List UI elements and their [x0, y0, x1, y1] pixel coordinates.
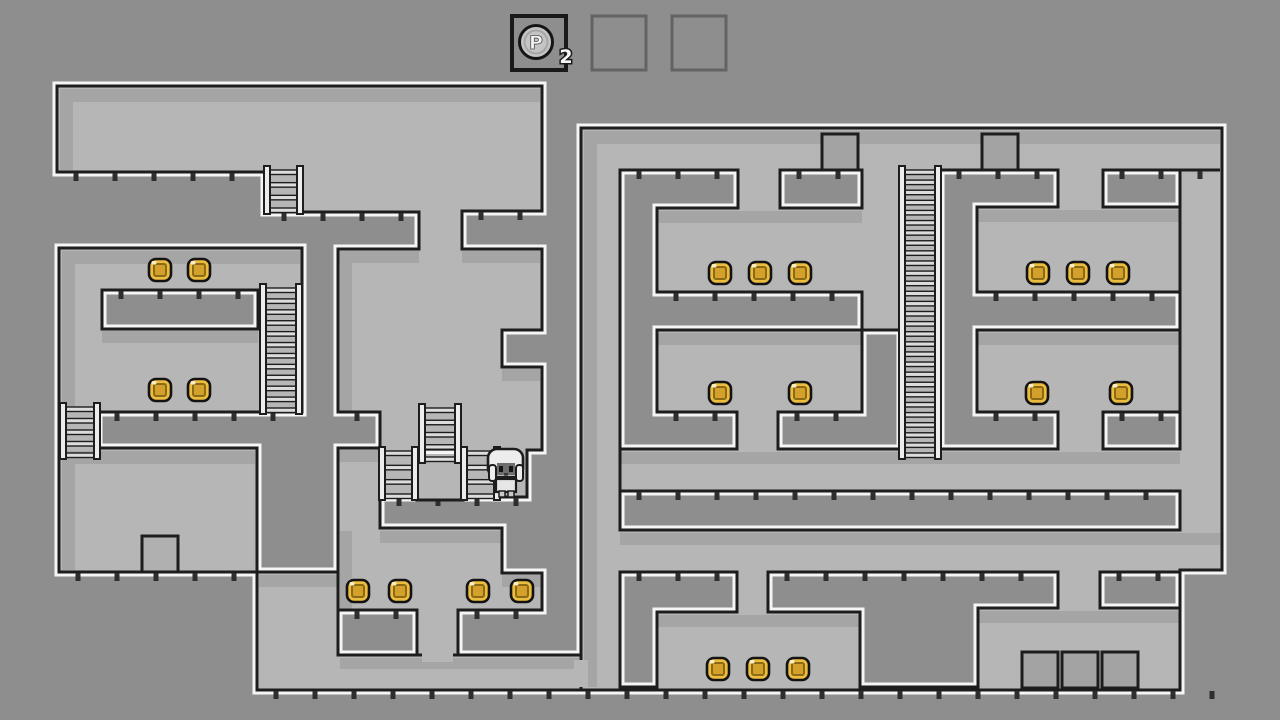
floor-tick: [115, 573, 120, 581]
room-shadow: [620, 533, 1220, 545]
floor-tick: [715, 171, 720, 179]
ladder-part: [903, 221, 937, 226]
coin-center: [394, 585, 406, 597]
ladder-part: [903, 382, 937, 387]
floor-tick: [1159, 413, 1164, 421]
floor-tick: [980, 573, 985, 581]
ladder-part: [903, 210, 937, 215]
coin[interactable]: [789, 262, 811, 284]
ladder-part: [268, 183, 299, 188]
p-coin-letter: P: [529, 32, 543, 54]
ladder-part: [419, 404, 425, 463]
floor-tick: [830, 293, 835, 301]
room-shadow: [60, 89, 540, 102]
room-shadow: [657, 615, 860, 627]
coin[interactable]: [1067, 262, 1089, 284]
floor-tick: [475, 498, 480, 506]
floor-tick: [1171, 691, 1176, 699]
coin-gloss: [752, 264, 757, 268]
floor-tick: [820, 691, 825, 699]
crate[interactable]: [1022, 652, 1058, 688]
crate[interactable]: [1102, 652, 1138, 688]
floor-tick: [154, 573, 159, 581]
coin-gloss: [1070, 264, 1075, 268]
floor-tick: [715, 573, 720, 581]
game-viewport[interactable]: P2: [0, 0, 1280, 720]
floor-tick: [785, 573, 790, 581]
coin[interactable]: [389, 580, 411, 602]
ladder-part: [903, 433, 937, 438]
room-shadow: [657, 211, 862, 223]
ladder-part: [903, 200, 937, 205]
floor-tick: [274, 691, 279, 699]
floor-tick: [795, 413, 800, 421]
coin-center: [794, 267, 806, 279]
floor-tick: [797, 171, 802, 179]
floor-tick: [957, 171, 962, 179]
coin[interactable]: [709, 382, 731, 404]
room-shadow: [340, 251, 352, 412]
floor-tick: [397, 498, 402, 506]
floor-tick: [742, 691, 747, 699]
coin-center: [752, 663, 764, 675]
ladder-part: [264, 299, 298, 304]
floor-tick: [76, 573, 81, 581]
passage-patch: [422, 648, 453, 662]
character-eye: [509, 466, 513, 472]
floor-tick: [191, 173, 196, 181]
coin[interactable]: [749, 262, 771, 284]
ladder-part: [903, 352, 937, 357]
coin-center: [193, 264, 205, 276]
floor-tick: [637, 573, 642, 581]
floor-tick: [1117, 573, 1122, 581]
ladder-part: [903, 271, 937, 276]
floor-tick: [1033, 293, 1038, 301]
ladder-part: [899, 166, 905, 459]
floor-tick: [469, 691, 474, 699]
floor-tick: [713, 293, 718, 301]
ladder-part: [264, 332, 298, 337]
ladder-part: [903, 312, 937, 317]
coin-center: [516, 585, 528, 597]
coin-gloss: [1113, 384, 1118, 388]
p-coin-count: 2: [559, 46, 572, 68]
floor-tick: [1033, 413, 1038, 421]
floor-tick: [836, 171, 841, 179]
ladder-part: [423, 433, 457, 438]
ladder-part: [297, 166, 303, 214]
character-eye: [499, 466, 503, 472]
coin-gloss: [792, 384, 797, 388]
coin-gloss: [1029, 384, 1034, 388]
ladder-part: [264, 375, 298, 380]
ladder-part: [264, 408, 298, 413]
ladder[interactable]: [899, 166, 941, 459]
ladder-part: [903, 241, 937, 246]
floor-tick: [232, 573, 237, 581]
coin-gloss: [470, 582, 475, 586]
ladder-part: [903, 443, 937, 448]
ladder-part: [903, 301, 937, 306]
ladder-part: [903, 423, 937, 428]
ladder-part: [903, 281, 937, 286]
floor-tick: [547, 691, 552, 699]
room-shadow: [584, 131, 1220, 144]
floor-tick: [1159, 171, 1164, 179]
ladder-part: [268, 208, 299, 213]
floor-tick: [1072, 293, 1077, 301]
floor-tick: [791, 293, 796, 301]
floor-tick: [949, 492, 954, 500]
ladder-part: [268, 170, 299, 175]
coin[interactable]: [707, 658, 729, 680]
coin-center: [1115, 387, 1127, 399]
floor-tick: [197, 291, 202, 299]
coin-center: [154, 384, 166, 396]
floor-tick: [1015, 691, 1020, 699]
crate[interactable]: [1062, 652, 1098, 688]
ladder-part: [412, 447, 418, 500]
floor-tick: [430, 691, 435, 699]
floor-tick: [514, 498, 519, 506]
coin[interactable]: [747, 658, 769, 680]
ladder-part: [264, 321, 298, 326]
coin-center: [1031, 387, 1043, 399]
ladder-part: [383, 494, 414, 499]
ladder-part: [903, 362, 937, 367]
ladder-part: [64, 419, 96, 424]
floor-tick: [1035, 171, 1040, 179]
ladder-part: [383, 451, 414, 456]
ladder-part: [903, 392, 937, 397]
ladder-part: [903, 342, 937, 347]
coin-center: [754, 267, 766, 279]
room-shadow: [259, 575, 338, 587]
floor-tick: [158, 291, 163, 299]
floor-tick: [360, 213, 365, 221]
floor-tick: [391, 691, 396, 699]
character-body: [496, 479, 516, 492]
floor-tick: [1019, 573, 1024, 581]
coin[interactable]: [149, 379, 171, 401]
floor-tick: [676, 492, 681, 500]
floor-tick: [834, 413, 839, 421]
ladder-part: [264, 288, 298, 293]
floor-tick: [910, 492, 915, 500]
floor-tick: [514, 611, 519, 619]
coin-center: [714, 387, 726, 399]
ladder-part: [903, 332, 937, 337]
coin-gloss: [350, 582, 355, 586]
floor-tick: [898, 691, 903, 699]
room-shadow: [978, 611, 1180, 623]
floor-tick: [781, 691, 786, 699]
ladder-part: [903, 372, 937, 377]
ladder-part: [94, 403, 100, 459]
floor-tick: [113, 173, 118, 181]
coin-center: [714, 267, 726, 279]
floor-tick: [1111, 293, 1116, 301]
room-shadow: [584, 131, 597, 687]
ladder-part: [64, 453, 96, 458]
character-hair-lock: [489, 465, 496, 481]
coin[interactable]: [149, 259, 171, 281]
crate[interactable]: [822, 134, 858, 170]
room-shadow: [977, 333, 1180, 345]
floor-tick: [793, 492, 798, 500]
floor-tick: [703, 691, 708, 699]
ladder-part: [903, 251, 937, 256]
character-mouth: [504, 473, 508, 476]
coin-center: [154, 264, 166, 276]
ladder-part: [903, 261, 937, 266]
floor-tick: [586, 691, 591, 699]
ladder-part: [423, 457, 457, 462]
room-shadow: [657, 333, 862, 345]
floor-tick: [676, 171, 681, 179]
ladder-part: [64, 442, 96, 447]
floor-tick: [988, 492, 993, 500]
coin-center: [712, 663, 724, 675]
floor-tick: [321, 213, 326, 221]
ladder-part: [903, 231, 937, 236]
coin[interactable]: [1027, 262, 1049, 284]
ladder-part: [903, 402, 937, 407]
coin-gloss: [1110, 264, 1115, 268]
coin-gloss: [792, 264, 797, 268]
floor-tick: [937, 691, 942, 699]
floor-tick: [115, 413, 120, 421]
coin-gloss: [514, 582, 519, 586]
ladder-part: [264, 343, 298, 348]
floor-tick: [832, 492, 837, 500]
ladder-part: [383, 480, 414, 485]
ladder-part: [264, 353, 298, 358]
floor-tick: [119, 291, 124, 299]
coin-gloss: [710, 660, 715, 664]
floor-tick: [1198, 171, 1203, 179]
room-shadow: [340, 658, 579, 669]
floor-tick: [271, 413, 276, 421]
floor-tick: [637, 492, 642, 500]
passage-patch: [574, 660, 588, 687]
coin[interactable]: [789, 382, 811, 404]
coin[interactable]: [188, 259, 210, 281]
floor-tick: [154, 413, 159, 421]
room-shadow: [62, 451, 75, 570]
floor-tick: [676, 573, 681, 581]
floor-tick: [232, 413, 237, 421]
ladder-part: [260, 284, 266, 414]
coin-center: [193, 384, 205, 396]
coin-center: [792, 663, 804, 675]
coin-gloss: [191, 381, 196, 385]
ladder-part: [935, 166, 941, 459]
floor-tick: [475, 611, 480, 619]
floor-tick: [1132, 691, 1137, 699]
coin-gloss: [191, 261, 196, 265]
floor-tick: [674, 413, 679, 421]
floor-tick: [1210, 691, 1215, 699]
floor-tick: [1093, 691, 1098, 699]
ladder-part: [903, 190, 937, 195]
coin[interactable]: [347, 580, 369, 602]
character-foot: [508, 491, 514, 497]
coin-gloss: [392, 582, 397, 586]
coin[interactable]: [188, 379, 210, 401]
floor-tick: [715, 492, 720, 500]
character-foot: [499, 491, 505, 497]
floor-tick: [625, 691, 630, 699]
character-hair-lock: [516, 465, 523, 481]
coin[interactable]: [1026, 382, 1048, 404]
floor-tick: [399, 213, 404, 221]
coin-center: [1032, 267, 1044, 279]
ladder-part: [264, 386, 298, 391]
coin-center: [352, 585, 364, 597]
coin-gloss: [152, 261, 157, 265]
floor-tick: [236, 291, 241, 299]
ladder-part: [264, 364, 298, 369]
coin[interactable]: [709, 262, 731, 284]
coin-center: [1072, 267, 1084, 279]
crate[interactable]: [982, 134, 1018, 170]
floor-tick: [74, 173, 79, 181]
ladder-part: [264, 310, 298, 315]
ladder-part: [423, 445, 457, 450]
crate[interactable]: [142, 536, 178, 572]
ladder-part: [64, 407, 96, 412]
room-shadow: [60, 89, 73, 170]
floor-tick: [230, 173, 235, 181]
coin-center: [1112, 267, 1124, 279]
floor-tick: [193, 413, 198, 421]
room-shadow: [102, 331, 258, 343]
floor-tick: [824, 573, 829, 581]
ladder-part: [379, 447, 385, 500]
coin[interactable]: [1110, 382, 1132, 404]
floor-tick: [193, 573, 198, 581]
floor-tick: [355, 413, 360, 421]
floor-tick: [664, 691, 669, 699]
floor-tick: [754, 492, 759, 500]
floor-tick: [752, 293, 757, 301]
floor-tick: [1120, 171, 1125, 179]
floor-tick: [996, 171, 1001, 179]
floor-tick: [674, 293, 679, 301]
floor-tick: [313, 691, 318, 699]
ladder-part: [264, 397, 298, 402]
floor-tick: [352, 691, 357, 699]
floor-tick: [994, 293, 999, 301]
floor-tick: [994, 413, 999, 421]
ladder-part: [296, 284, 302, 414]
ladder-part: [383, 465, 414, 470]
floor-tick: [479, 212, 484, 220]
floor-tick: [1105, 492, 1110, 500]
ladder-part: [268, 195, 299, 200]
room-shadow: [462, 251, 540, 263]
coin-center: [794, 387, 806, 399]
floor-tick: [859, 691, 864, 699]
coin[interactable]: [1107, 262, 1129, 284]
coin-gloss: [152, 381, 157, 385]
ladder-part: [60, 403, 66, 459]
coin-gloss: [712, 384, 717, 388]
floor-tick: [941, 573, 946, 581]
floor-tick: [152, 173, 157, 181]
room-shadow: [977, 210, 1180, 222]
room-shadow: [380, 531, 502, 543]
floor-tick: [518, 212, 523, 220]
ladder-part: [264, 166, 270, 214]
ladder-part: [903, 180, 937, 185]
coin-gloss: [1030, 264, 1035, 268]
floor-tick: [282, 213, 287, 221]
floor-tick: [355, 611, 360, 619]
floor-tick: [871, 492, 876, 500]
ladder-part: [461, 447, 467, 500]
floor-tick: [976, 691, 981, 699]
floor-tick: [863, 573, 868, 581]
coin-gloss: [790, 660, 795, 664]
floor-tick: [1144, 492, 1149, 500]
ladder-part: [903, 322, 937, 327]
room-shadow: [338, 450, 380, 462]
ladder-part: [465, 494, 496, 499]
floor-tick: [1120, 413, 1125, 421]
coin-gloss: [750, 660, 755, 664]
coin-center: [472, 585, 484, 597]
ladder-part: [903, 413, 937, 418]
ladder-part: [423, 408, 457, 413]
coin[interactable]: [511, 580, 533, 602]
floor-tick: [902, 573, 907, 581]
floor-tick: [1027, 492, 1032, 500]
ladder-part: [903, 291, 937, 296]
ladder-part: [64, 430, 96, 435]
floor-tick: [1066, 492, 1071, 500]
coin[interactable]: [467, 580, 489, 602]
floor-tick: [1054, 691, 1059, 699]
game-canvas[interactable]: P2: [0, 0, 1280, 720]
room-shadow: [62, 251, 300, 264]
room-shadow: [502, 369, 540, 381]
floor-tick: [394, 611, 399, 619]
floor-tick: [1156, 573, 1161, 581]
room-shadow: [62, 251, 75, 410]
floor-tick: [637, 171, 642, 179]
coin[interactable]: [787, 658, 809, 680]
ladder-part: [903, 170, 937, 175]
ladder-part: [903, 453, 937, 458]
ladder-part: [423, 420, 457, 425]
floor-tick: [713, 413, 718, 421]
coin-gloss: [712, 264, 717, 268]
floor-tick: [508, 691, 513, 699]
floor-tick: [1150, 293, 1155, 301]
